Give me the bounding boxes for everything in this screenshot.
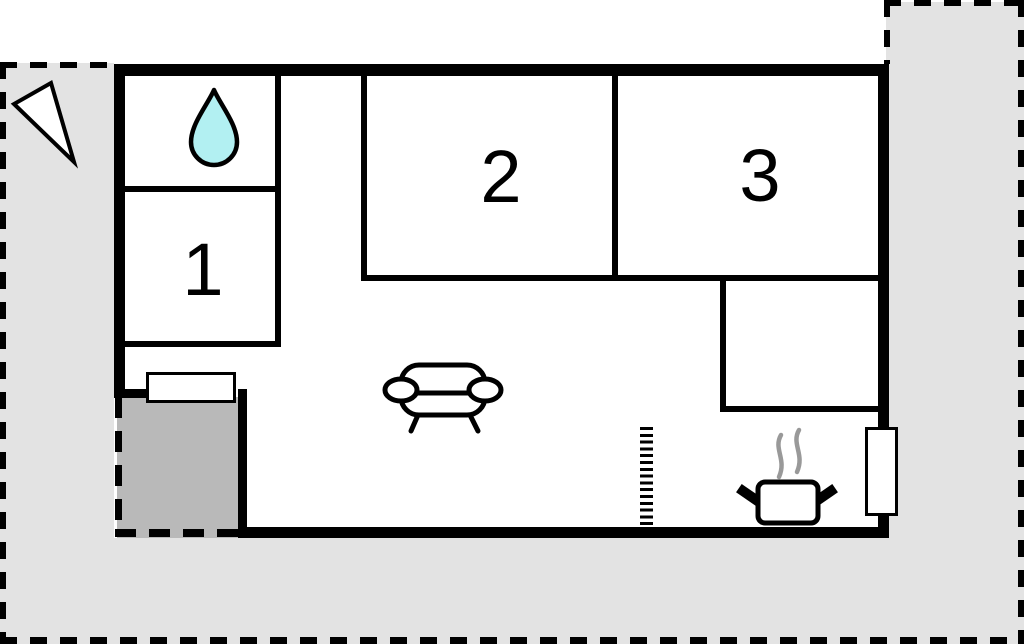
terrace-bottom-dash [115, 529, 241, 537]
plot-boundary-left-top-dash [0, 62, 114, 68]
terrace-left-dash [115, 397, 122, 533]
room2-label: 2 [480, 140, 521, 214]
plot-boundary-left-dash [0, 62, 6, 644]
wall-top [114, 64, 889, 76]
wall-storage-bottom [720, 406, 878, 412]
steam-icon [778, 430, 799, 477]
wall-room1-bottom [114, 341, 281, 347]
wall-storage-left [720, 281, 726, 412]
wall-bathroom-bottom [125, 186, 281, 192]
water-drop-icon [188, 86, 240, 170]
plot-boundary-topright-left-dash [884, 0, 890, 64]
room3-label: 3 [739, 139, 780, 213]
north-arrow-icon [8, 78, 80, 170]
room-opening-dashes [640, 427, 653, 529]
plot-boundary-bottom-dash [0, 637, 1024, 644]
wall-entry-stub [114, 389, 148, 398]
entrance-door [146, 372, 236, 403]
plot-boundary-topright-top-dash [884, 0, 1024, 6]
outdoor-area-right [886, 2, 1024, 644]
floor-plan: 1 2 3 [0, 0, 1024, 644]
wall-terrace-right [238, 389, 247, 538]
wall-room2-left [361, 64, 367, 281]
outdoor-area-bottom [0, 538, 1024, 644]
wall-rooms-bottom [361, 275, 878, 281]
wall-bathroom-right [275, 64, 281, 347]
wall-room2-room3-divider [612, 64, 618, 281]
cooking-pot-icon [733, 423, 841, 529]
wall-left [114, 64, 125, 398]
window [865, 427, 898, 516]
room1-label: 1 [182, 233, 223, 307]
plot-boundary-right-dash [1018, 0, 1024, 644]
terrace [117, 397, 238, 538]
sofa-icon [378, 356, 506, 436]
